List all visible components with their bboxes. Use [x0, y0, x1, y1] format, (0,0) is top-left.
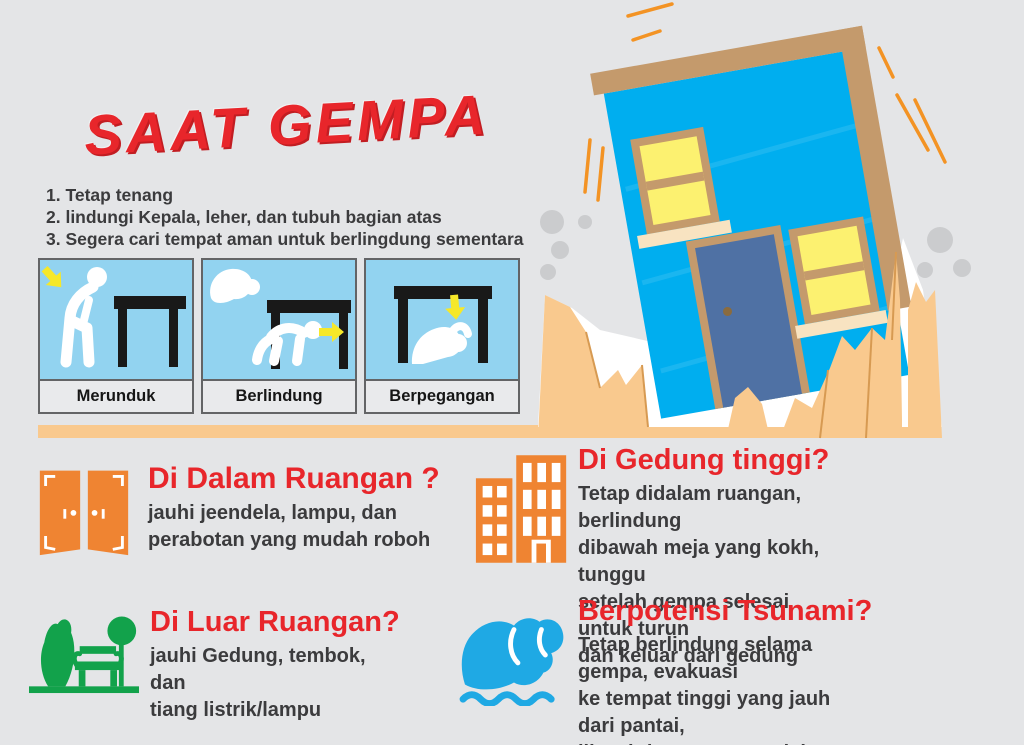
house-illustration [530, 0, 1024, 445]
door-icon [36, 462, 132, 560]
panel-berpegangan: Berpegangan [364, 258, 520, 414]
rock-debris-left [540, 210, 592, 280]
rock-debris-right [917, 227, 971, 278]
panel-label: Berlindung [203, 379, 355, 412]
yellow-arrow-icon [40, 262, 69, 294]
section-heading: Di Gedung tinggi? [578, 444, 829, 477]
panel-label: Berpegangan [366, 379, 518, 412]
section-heading: Di Dalam Ruangan ? [148, 462, 440, 496]
crawl-under-table-pictogram [203, 260, 355, 379]
panel-berlindung: Berlindung [201, 258, 357, 414]
section-body: Tetap berlindung selama gempa, evakuasi … [578, 632, 872, 745]
panel-label: Merunduk [40, 379, 192, 412]
instruction-steps: 1. Tetap tenang 2. lindungi Kepala, lehe… [46, 184, 524, 250]
page-title: SAAT GEMPA [83, 81, 491, 167]
earthquake-infographic: SAAT GEMPA 1. Tetap tenang 2. lindungi K… [0, 0, 1024, 745]
section-body: jauhi jeendela, lampu, dan perabotan yan… [148, 500, 440, 554]
wave-icon [458, 608, 568, 706]
building-icon [474, 450, 570, 568]
action-panels: Merunduk Berlindung [38, 258, 520, 414]
panel-merunduk: Merunduk [38, 258, 194, 414]
section-heading: Berpotensi Tsunami? [578, 595, 872, 628]
hold-on-under-table-pictogram [366, 260, 518, 379]
section-heading: Di Luar Ruangan? [150, 606, 400, 639]
section-body: jauhi Gedung, tembok, dan tiang listrik/… [150, 643, 400, 724]
duck-under-table-pictogram [40, 260, 192, 379]
park-icon [28, 606, 140, 694]
